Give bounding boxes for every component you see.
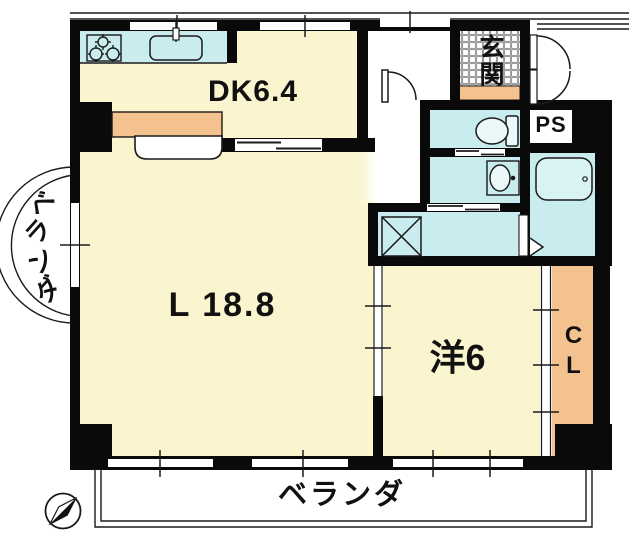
- western-room-floor: [383, 266, 540, 456]
- room-floors: [80, 31, 595, 456]
- living-floor: [80, 138, 375, 456]
- veranda-bottom-border: [95, 470, 592, 527]
- bathtub-icon: [536, 158, 592, 200]
- entry-doors: [530, 35, 570, 104]
- genkan-step: [458, 86, 520, 100]
- compass-icon: [46, 494, 81, 529]
- floor-plan: DK6.4 L 18.8 洋6 玄関 PS CL ベランダ ベ ラ ン ダ: [0, 0, 629, 542]
- hall-living-opening: [360, 152, 378, 203]
- genkan-tile-floor: [458, 31, 520, 86]
- floor-plan-drawing: [0, 0, 629, 542]
- hall-door: [382, 70, 416, 102]
- toilet-icon: [476, 116, 518, 146]
- serving-hatch: [135, 136, 222, 159]
